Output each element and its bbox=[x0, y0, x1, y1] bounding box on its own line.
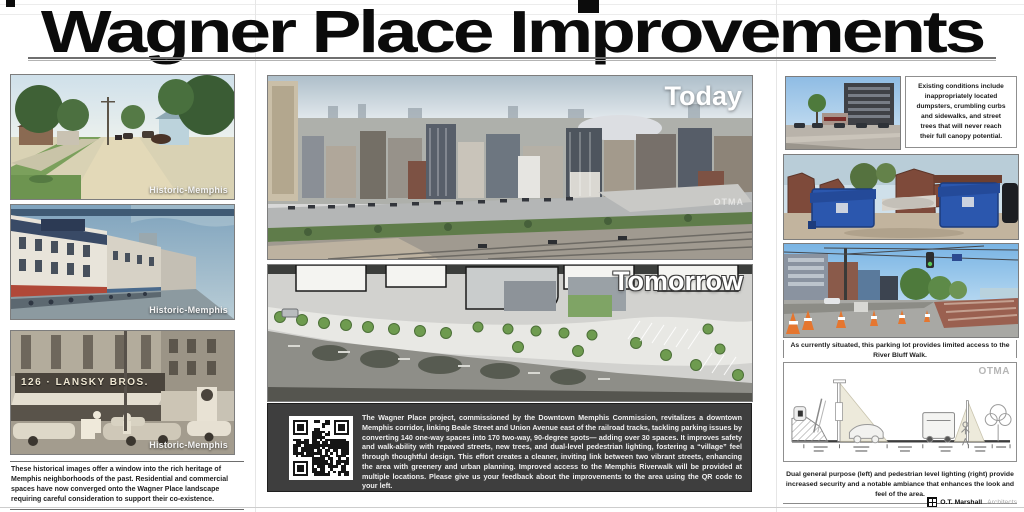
street-view-illustration bbox=[784, 244, 1018, 337]
historic-memphis-credit-3: Historic-Memphis bbox=[149, 440, 228, 450]
lighting-diagram-illustration bbox=[784, 363, 1016, 462]
lansky-storefront-illustration bbox=[11, 331, 234, 454]
project-description-panel: The Wagner Place project, commissioned b… bbox=[267, 403, 752, 492]
qr-finder-bottom-left bbox=[293, 461, 308, 476]
otma-watermark-diagram: OTMA bbox=[979, 366, 1010, 377]
column-divider-left bbox=[255, 0, 256, 512]
historic-memphis-credit-2: Historic-Memphis bbox=[149, 305, 228, 315]
qr-finder-top-right bbox=[334, 420, 349, 435]
qr-finder-top-left bbox=[293, 420, 308, 435]
page-title: Wagner Place Improvements bbox=[0, 8, 1024, 56]
existing-conditions-photo bbox=[785, 76, 901, 150]
project-description: The Wagner Place project, commissioned b… bbox=[362, 413, 742, 491]
street-view-photo bbox=[783, 243, 1019, 338]
qr-code bbox=[289, 416, 353, 480]
top-left-mark bbox=[6, 0, 15, 7]
title-underline-shadow bbox=[28, 60, 996, 61]
historic-residential-illustration bbox=[11, 75, 234, 199]
today-aerial-photo: Today OTMA bbox=[267, 75, 753, 260]
historic-images-caption: These historical images offer a window i… bbox=[10, 461, 244, 510]
column-divider-right bbox=[776, 0, 777, 512]
firm-name: O.T. Marshall bbox=[940, 499, 982, 506]
historic-photo-residential: Historic-Memphis bbox=[10, 74, 235, 200]
title-underline bbox=[28, 57, 996, 59]
otma-watermark-today: OTMA bbox=[714, 197, 745, 207]
tomorrow-plan-rendering: Tomorrow bbox=[267, 264, 753, 402]
ot-marshall-logo-icon bbox=[927, 497, 937, 507]
dumpsters-photo bbox=[783, 154, 1019, 240]
historic-photo-lansky: 126 · LANSKY BROS. Historic-Memphis bbox=[10, 330, 235, 455]
dumpsters-illustration bbox=[784, 155, 1018, 239]
historic-commercial-illustration bbox=[11, 205, 234, 319]
tomorrow-label: Tomorrow bbox=[613, 266, 743, 297]
lighting-section-diagram: OTMA bbox=[783, 362, 1017, 462]
today-label: Today bbox=[664, 81, 742, 112]
historic-photo-commercial: Historic-Memphis bbox=[10, 204, 235, 320]
lansky-bros-sign: 126 · LANSKY BROS. bbox=[21, 377, 149, 388]
historic-memphis-credit-1: Historic-Memphis bbox=[149, 185, 228, 195]
firm-suffix: Architects bbox=[987, 499, 1017, 506]
parking-access-caption: As currently situated, this parking lot … bbox=[783, 340, 1017, 358]
qr-code-grid bbox=[293, 420, 349, 476]
existing-conditions-textbox: Existing conditions include inappropriat… bbox=[905, 76, 1017, 148]
firm-signature: O.T. Marshall Architects bbox=[783, 496, 1017, 508]
parking-lot-tower-illustration bbox=[786, 77, 900, 149]
existing-conditions-text: Existing conditions include inappropriat… bbox=[913, 82, 1009, 141]
